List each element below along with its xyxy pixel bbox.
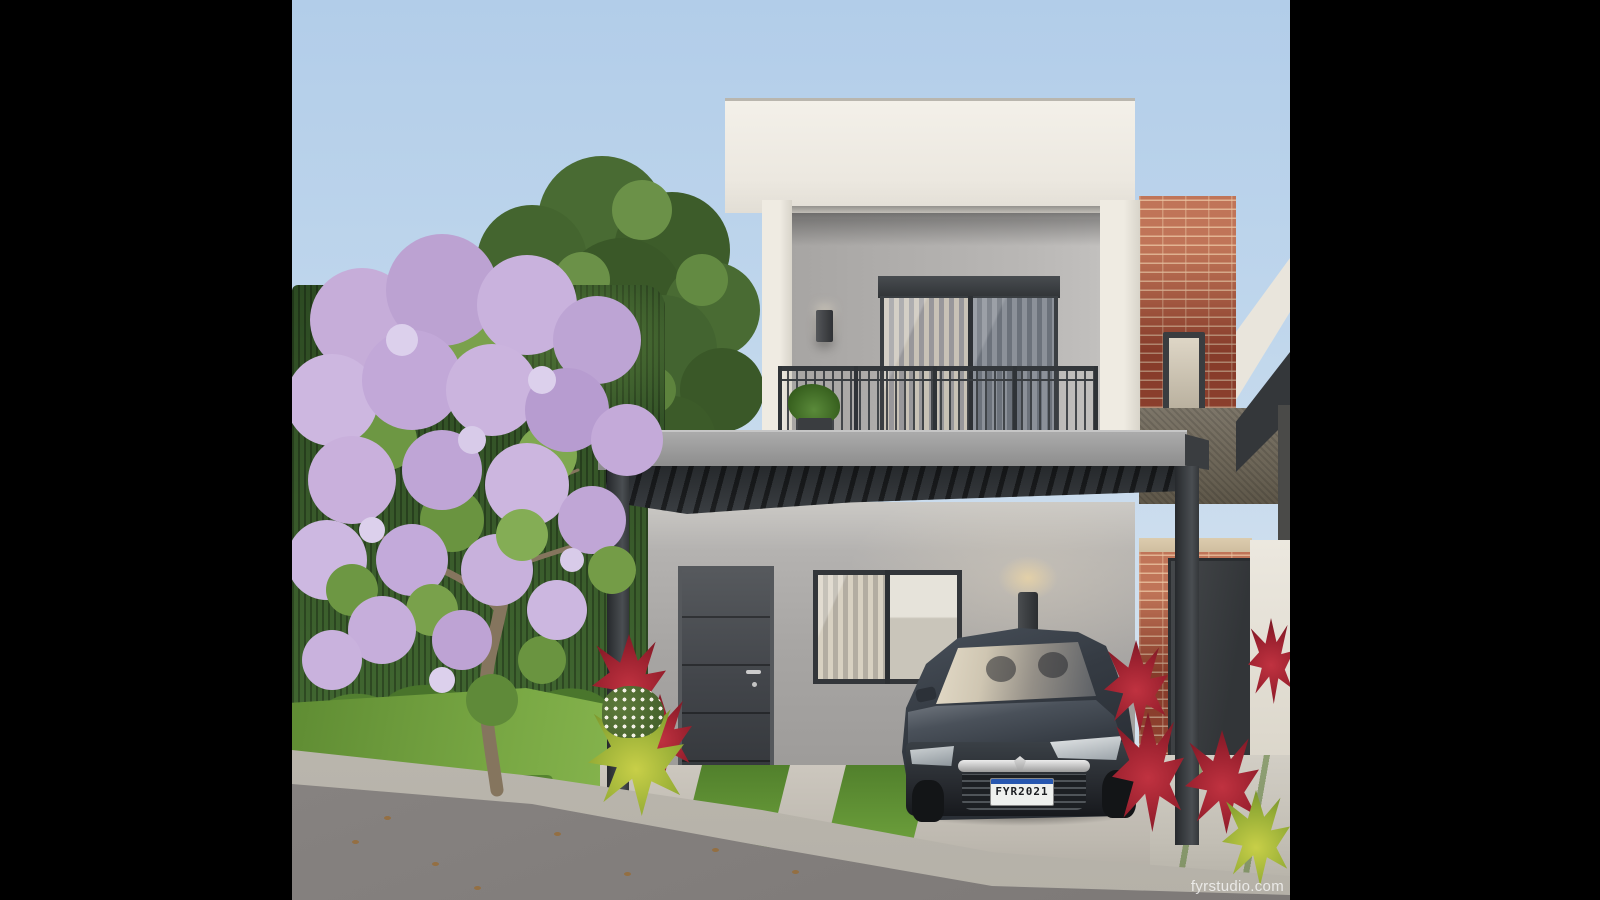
car-seat-silhouette — [1038, 652, 1068, 678]
window-shutter-box — [878, 276, 1060, 298]
studio-watermark: fyrstudio.com — [1084, 878, 1284, 895]
door-keyhole — [752, 682, 757, 687]
car-windshield — [936, 642, 1098, 704]
parapet-shadow — [762, 206, 1140, 218]
fallen-leaf — [474, 886, 481, 890]
railing-post — [1013, 366, 1017, 436]
license-plate: FYR2021 — [990, 778, 1054, 806]
window-mullion — [885, 570, 890, 684]
fallen-leaf — [792, 870, 799, 874]
fallen-leaf — [554, 832, 561, 836]
neighbor-narrow-window — [1163, 332, 1205, 420]
letterbox-left — [0, 0, 292, 900]
car-seat-silhouette — [986, 656, 1016, 682]
fallen-leaf — [432, 862, 439, 866]
balcony-wall-sconce — [816, 310, 833, 342]
railing-post — [1094, 366, 1098, 436]
white-column-right — [1100, 200, 1140, 438]
car-wheel-left — [912, 780, 944, 822]
fallen-leaf — [624, 872, 631, 876]
railing-post — [933, 366, 937, 436]
jacaranda-canopy — [292, 234, 663, 726]
white-flower-bush — [602, 686, 664, 738]
railing-post — [778, 366, 782, 436]
jacaranda-tree — [292, 140, 752, 800]
license-plate-text: FYR2021 — [991, 786, 1053, 797]
architectural-render: FYR2021 fyrstudio.com — [292, 0, 1290, 900]
letterbox-right — [1290, 0, 1600, 900]
roof-parapet — [725, 98, 1135, 213]
fallen-leaf — [712, 848, 719, 852]
neighbor-recess-shadow — [1278, 405, 1290, 545]
license-plate-blue-strip — [991, 779, 1053, 784]
fallen-leaf — [384, 816, 391, 820]
fallen-leaf — [352, 840, 359, 844]
parked-car: FYR2021 — [900, 612, 1140, 828]
frosted-glass — [1169, 338, 1199, 414]
carport-post-right — [1175, 466, 1199, 845]
railing-top-rail — [778, 366, 1098, 371]
railing-post — [854, 366, 858, 436]
render-stage: FYR2021 fyrstudio.com — [0, 0, 1600, 900]
railing-mid-rail — [778, 379, 1098, 381]
window-pane-curtain — [818, 575, 885, 679]
